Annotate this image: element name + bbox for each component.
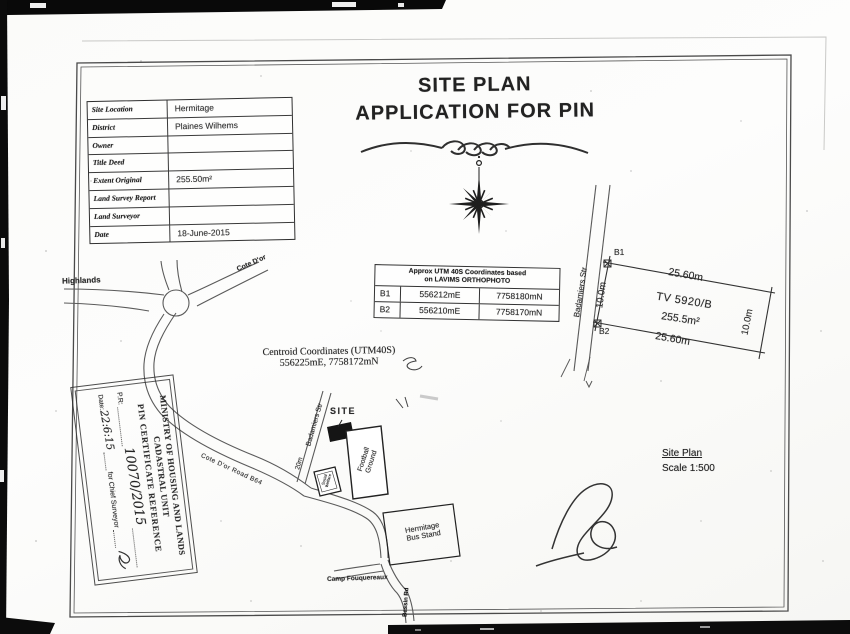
scan-noise: [0, 0, 2, 2]
table-row: Date18-June-2015: [90, 222, 294, 243]
centroid-coordinates-note: Centroid Coordinates (UTM40S) 556225mE, …: [222, 344, 436, 370]
site-info-table: Site LocationHermitage DistrictPlaines W…: [87, 97, 296, 245]
scale-note: Site Plan Scale 1:500: [662, 446, 715, 476]
title-line1: SITE PLAN: [330, 70, 620, 101]
map-label-highlands: Highlands: [62, 276, 101, 286]
title-line2: APPLICATION FOR PIN: [330, 97, 620, 128]
map-buildings: [314, 420, 460, 565]
page-title: SITE PLAN APPLICATION FOR PIN: [330, 70, 621, 128]
map-label-site: SITE: [330, 407, 356, 417]
plot-label-b1: B1: [614, 248, 624, 257]
utm-coordinates-table: Approx UTM 40S Coordinates based on LAVI…: [373, 264, 560, 322]
plot-label-b2: B2: [599, 327, 609, 336]
chief-surveyor-signature-icon: [115, 548, 134, 572]
compass-rose-icon: [449, 156, 509, 234]
scale-note-title: Site Plan: [662, 446, 715, 461]
signature-scribble: [536, 484, 617, 566]
stamp-date-value: 22:6:15: [97, 409, 116, 451]
scale-note-scale: Scale 1:500: [662, 461, 715, 476]
map-roundabout: [163, 290, 189, 316]
table-row: B2 556210mE 7758170mN: [374, 302, 558, 321]
decorative-flourish: [361, 141, 588, 155]
scanned-site-plan-document: SITE PLAN APPLICATION FOR PIN Site Locat…: [0, 0, 850, 634]
